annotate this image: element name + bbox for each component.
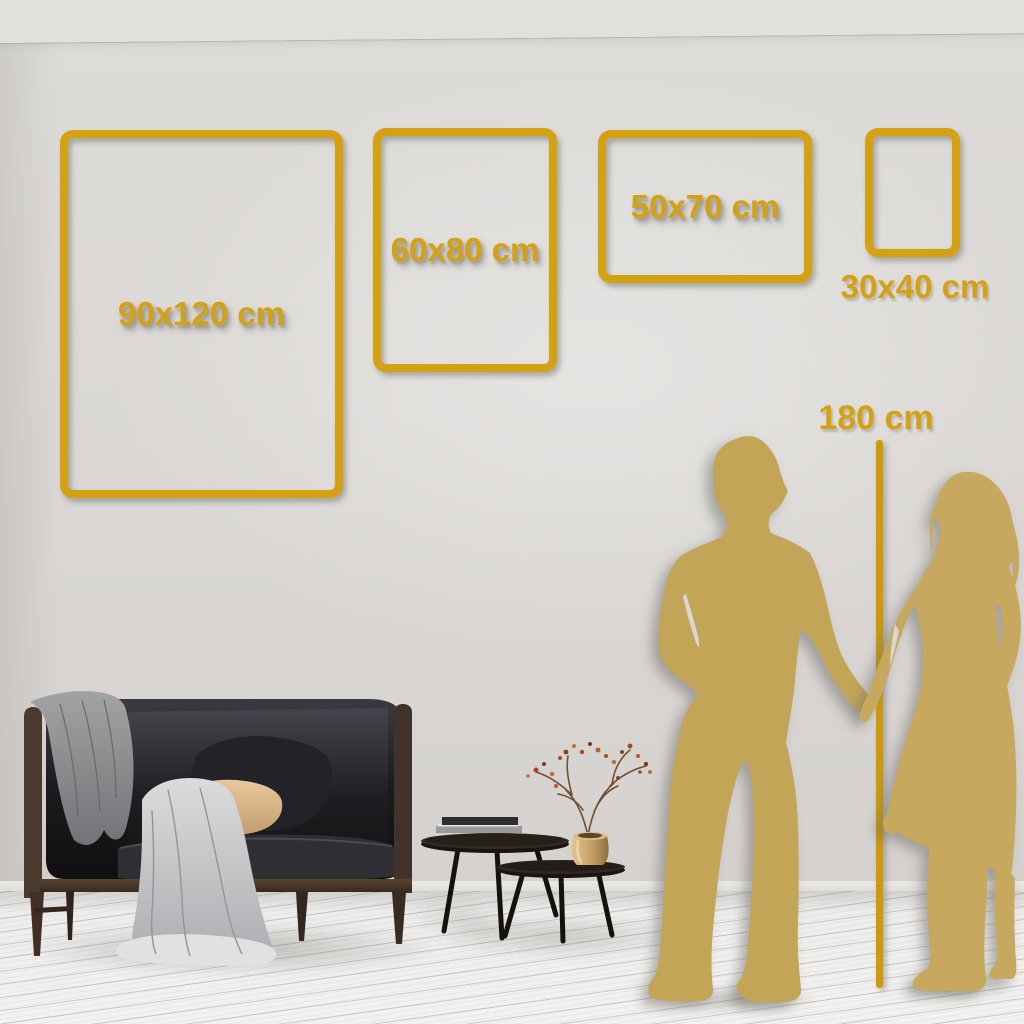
ceiling-edge bbox=[0, 0, 1024, 43]
gray-blanket bbox=[30, 691, 134, 845]
frame-90x120: 90x120 cm bbox=[60, 130, 343, 498]
man-silhouette bbox=[646, 432, 882, 1010]
woman-silhouette bbox=[858, 466, 1024, 994]
frame-30x40 bbox=[865, 128, 960, 257]
frame-50x70-label: 50x70 cm bbox=[631, 188, 780, 226]
frame-30x40-label: 30x40 cm bbox=[830, 268, 1000, 306]
table-tall-surface bbox=[425, 834, 565, 847]
sofa-leg-front-left bbox=[30, 892, 44, 956]
sofa-leg-middle bbox=[296, 892, 308, 941]
nesting-coffee-tables bbox=[420, 735, 665, 950]
table-low-legs bbox=[505, 871, 612, 941]
woman-leg-back bbox=[989, 860, 1016, 979]
frame-60x80: 60x80 cm bbox=[373, 128, 557, 372]
sofa-wood-post-left bbox=[24, 707, 42, 898]
sofa-leg-back-left bbox=[66, 892, 74, 940]
plant-berries bbox=[526, 742, 652, 788]
wall-art-size-guide-scene: 90x120 cm 60x80 cm 50x70 cm 30x40 cm 180… bbox=[0, 0, 1024, 1024]
plant-branches bbox=[536, 750, 646, 836]
woman-body bbox=[860, 472, 1021, 876]
frame-90x120-label: 90x120 cm bbox=[118, 295, 285, 333]
sofa-leg-front-right bbox=[392, 892, 406, 944]
book-bottom bbox=[436, 826, 522, 833]
sofa-wood-post-right bbox=[394, 704, 412, 893]
brass-vase-opening bbox=[578, 833, 602, 838]
velvet-loveseat bbox=[15, 685, 420, 980]
frame-60x80-label: 60x80 cm bbox=[391, 231, 540, 269]
book-top bbox=[442, 817, 518, 825]
frame-50x70: 50x70 cm bbox=[598, 130, 812, 283]
man-body bbox=[648, 436, 870, 1002]
